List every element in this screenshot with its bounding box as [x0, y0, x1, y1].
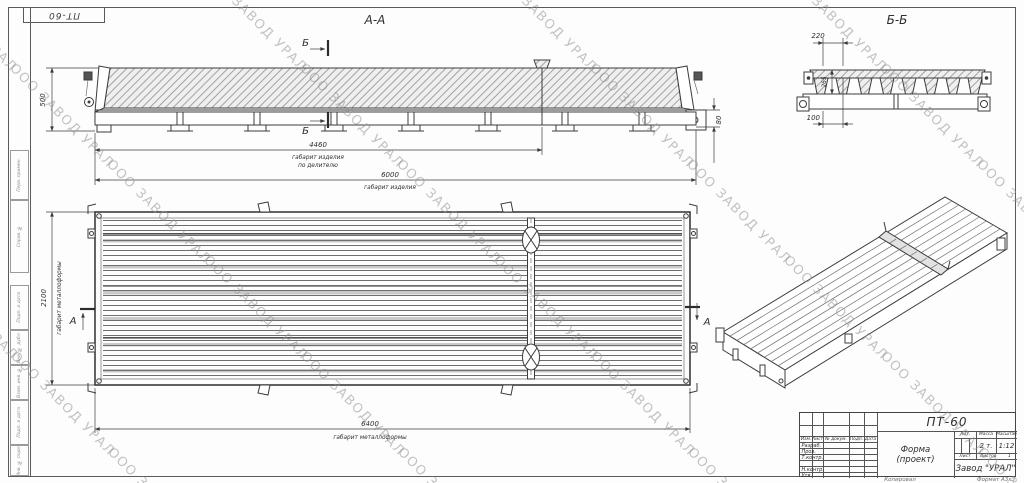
- aa-cut-mark-b-top: Б: [302, 38, 328, 56]
- plan-dim-length: 6400 габарит металлоформы: [95, 388, 690, 441]
- svg-text:265: 265: [822, 76, 828, 87]
- tb-title-line1: Форма: [901, 445, 931, 455]
- bb-ribbed-deck: [810, 70, 985, 94]
- iso-platform: [723, 197, 1007, 388]
- margin-cell-perv-primen: Перв. примен.: [10, 150, 29, 200]
- svg-text:80: 80: [715, 115, 723, 124]
- plan-dim-width: 2100 габарит металлоформы: [40, 212, 95, 385]
- frame-top: [8, 7, 1016, 8]
- tb-title: Форма (проект): [877, 431, 954, 478]
- margin-cell-vzam-inv: Взам. инв. №: [10, 365, 29, 400]
- svg-text:220: 220: [811, 32, 825, 40]
- watermark-text: ООО ЗАВОД УРАЛ: [0, 0, 20, 75]
- bb-base-rail: [803, 94, 987, 109]
- drawing-sheet: ПТ-60 Перв. примен. Справ. № Подп. и дат…: [0, 0, 1024, 483]
- aa-dim-overall: 6000 габарит изделия: [95, 130, 696, 191]
- svg-text:4460: 4460: [309, 141, 327, 149]
- svg-text:по делителю: по делителю: [298, 163, 338, 169]
- svg-text:габарит изделия: габарит изделия: [292, 155, 344, 161]
- tb-lit-header: Лит.: [954, 431, 976, 438]
- footer-copy: Копировал: [870, 477, 930, 483]
- tb-mass-header: Масса: [976, 431, 996, 438]
- margin-cell-podp-data-1: Подп. и дата: [10, 285, 29, 330]
- tb-col-data: Дата: [864, 436, 877, 442]
- svg-text:А: А: [69, 316, 77, 327]
- plan-view: А А 2100 габарит металлоформы 6400 габар…: [38, 195, 730, 447]
- tb-col-izm: Изм.: [800, 436, 812, 442]
- aa-dim-to-divider: 4460 габарит изделия по делителю: [95, 127, 542, 185]
- tb-col-podp: Подп.: [849, 436, 864, 442]
- tb-title-line2: (проект): [896, 455, 934, 465]
- bb-dim-rib-pitch: 220: [811, 32, 853, 66]
- tb-row-tkontr: Т.контр.: [802, 455, 824, 461]
- tb-col-list: Лист: [812, 436, 823, 442]
- aa-rail: [95, 110, 696, 132]
- isometric-view: [715, 170, 1015, 405]
- title-block: Изм. Лист № докум. Подп. Дата Разраб. Пр…: [799, 412, 1016, 477]
- svg-text:габарит металлоформы: габарит металлоформы: [57, 261, 63, 335]
- tb-doc-number: ПТ-60: [877, 413, 1017, 431]
- tb-mass-value: 2 т.: [976, 438, 996, 453]
- plan-body: [95, 212, 690, 385]
- plan-cut-mark-a-left: А: [69, 309, 95, 330]
- section-bb-view: Б-Б: [780, 10, 1016, 140]
- aa-left-latch: [84, 72, 94, 107]
- margin-cell-sprav-no: Справ. №: [10, 200, 29, 273]
- aa-slab: [95, 66, 694, 112]
- svg-text:А: А: [703, 317, 711, 328]
- tb-row-utv: Утв.: [802, 473, 813, 479]
- cut-label-b-bottom: Б: [302, 126, 309, 137]
- footer-format: Формат А3х3: [955, 477, 1015, 483]
- margin-cell-podp-data-2: Подп. и дата: [10, 400, 29, 445]
- svg-text:500: 500: [39, 93, 47, 107]
- frame-inner-left: [30, 7, 31, 477]
- margin-cell-inv-podl: Инв. № подл.: [10, 445, 29, 476]
- svg-text:6000: 6000: [381, 171, 399, 179]
- tb-company: Завод "УРАЛ": [954, 459, 1017, 478]
- svg-text:габарит изделия: габарит изделия: [364, 185, 416, 191]
- svg-text:2100: 2100: [40, 289, 48, 307]
- frame-left: [8, 7, 9, 477]
- tb-scale-header: Масштаб: [996, 431, 1017, 438]
- svg-text:100: 100: [807, 114, 821, 122]
- section-aa-title: А-А: [364, 13, 386, 27]
- section-bb-title: Б-Б: [887, 13, 908, 27]
- tb-col-ndoc: № докум.: [823, 436, 849, 442]
- tb-scale-value: 1:12: [996, 438, 1017, 453]
- svg-text:габарит металлоформы: габарит металлоформы: [333, 435, 407, 441]
- margin-cell-inv-dubl: Инв. № дубл.: [10, 330, 29, 365]
- svg-text:6400: 6400: [361, 420, 379, 428]
- cut-label-b-top: Б: [302, 38, 309, 49]
- section-aa-view: А-А: [35, 10, 760, 200]
- plan-cut-mark-a-right: А: [685, 303, 711, 328]
